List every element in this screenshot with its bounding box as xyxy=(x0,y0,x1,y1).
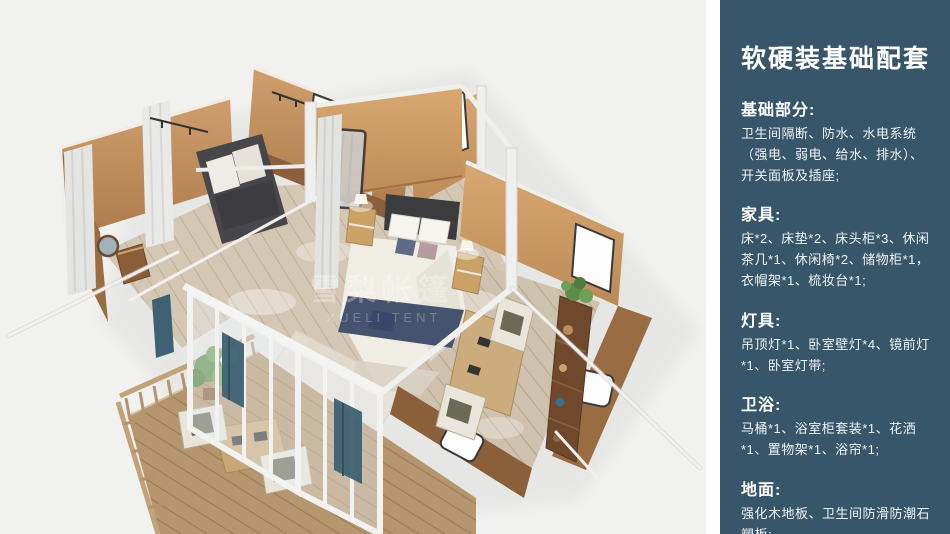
section-bathroom-body: 马桶*1、浴室柜套装*1、花洒*1、置物架*1、浴帘*1; xyxy=(741,419,930,461)
accent-pillow xyxy=(417,242,438,260)
divider xyxy=(706,0,720,534)
section-furniture-body: 床*2、床垫*2、床头柜*3、休闲茶几*1、休闲椅*2、储物柜*1，衣帽架*1、… xyxy=(741,229,930,291)
section-flooring: 地面: 强化木地板、卫生间防滑防潮石塑板; xyxy=(741,476,930,534)
section-basics-title: 基础部分: xyxy=(741,96,930,120)
section-lighting-body: 吊顶灯*1、卧室壁灯*4、镜前灯*1、卧室灯带; xyxy=(741,335,930,377)
section-lighting-title: 灯具: xyxy=(741,307,930,331)
section-furniture: 家具: 床*2、床垫*2、床头柜*3、休闲茶几*1、休闲椅*2、储物柜*1，衣帽… xyxy=(741,201,930,291)
floorplan-render: 雪梨帐篷 XUELI TENT xyxy=(0,0,706,534)
section-lighting: 灯具: 吊顶灯*1、卧室壁灯*4、镜前灯*1、卧室灯带; xyxy=(741,307,930,377)
curtain-white-left xyxy=(64,144,96,296)
section-basics-body: 卫生间隔断、防水、水电系统（强电、弱电、给水、排水）、开关面板及插座; xyxy=(741,124,930,186)
section-bathroom-title: 卫浴: xyxy=(741,391,930,415)
curtain-teal-door-left xyxy=(222,332,244,408)
floorplan-svg: 雪梨帐篷 XUELI TENT xyxy=(0,0,706,534)
info-panel: 软硬装基础配套 基础部分: 卫生间隔断、防水、水电系统（强电、弱电、给水、排水）… xyxy=(720,0,950,534)
section-flooring-title: 地面: xyxy=(741,476,930,500)
section-flooring-body: 强化木地板、卫生间防滑防潮石塑板; xyxy=(741,504,930,534)
panel-title: 软硬装基础配套 xyxy=(741,44,930,74)
watermark: 雪梨帐篷 XUELI TENT xyxy=(310,274,454,325)
curtain-teal-door-right xyxy=(334,398,362,484)
page: 雪梨帐篷 XUELI TENT 软硬装基础配套 基础部分: 卫生间隔断、防水、水… xyxy=(0,0,950,534)
round-mirror xyxy=(98,236,118,256)
frame-post xyxy=(477,86,486,170)
frame-post-right xyxy=(506,148,517,290)
accent-pillow xyxy=(395,238,416,256)
watermark-zh: 雪梨帐篷 xyxy=(310,274,454,307)
watermark-en: XUELI TENT xyxy=(327,310,442,325)
frame-post-left xyxy=(305,102,316,202)
pillow xyxy=(418,218,450,244)
section-bathroom: 卫浴: 马桶*1、浴室柜套装*1、花洒*1、置物架*1、浴帘*1; xyxy=(741,391,930,461)
pillow xyxy=(388,214,420,240)
curtain-white-post xyxy=(314,114,342,290)
section-basics: 基础部分: 卫生间隔断、防水、水电系统（强电、弱电、给水、排水）、开关面板及插座… xyxy=(741,96,930,186)
section-furniture-title: 家具: xyxy=(741,201,930,225)
